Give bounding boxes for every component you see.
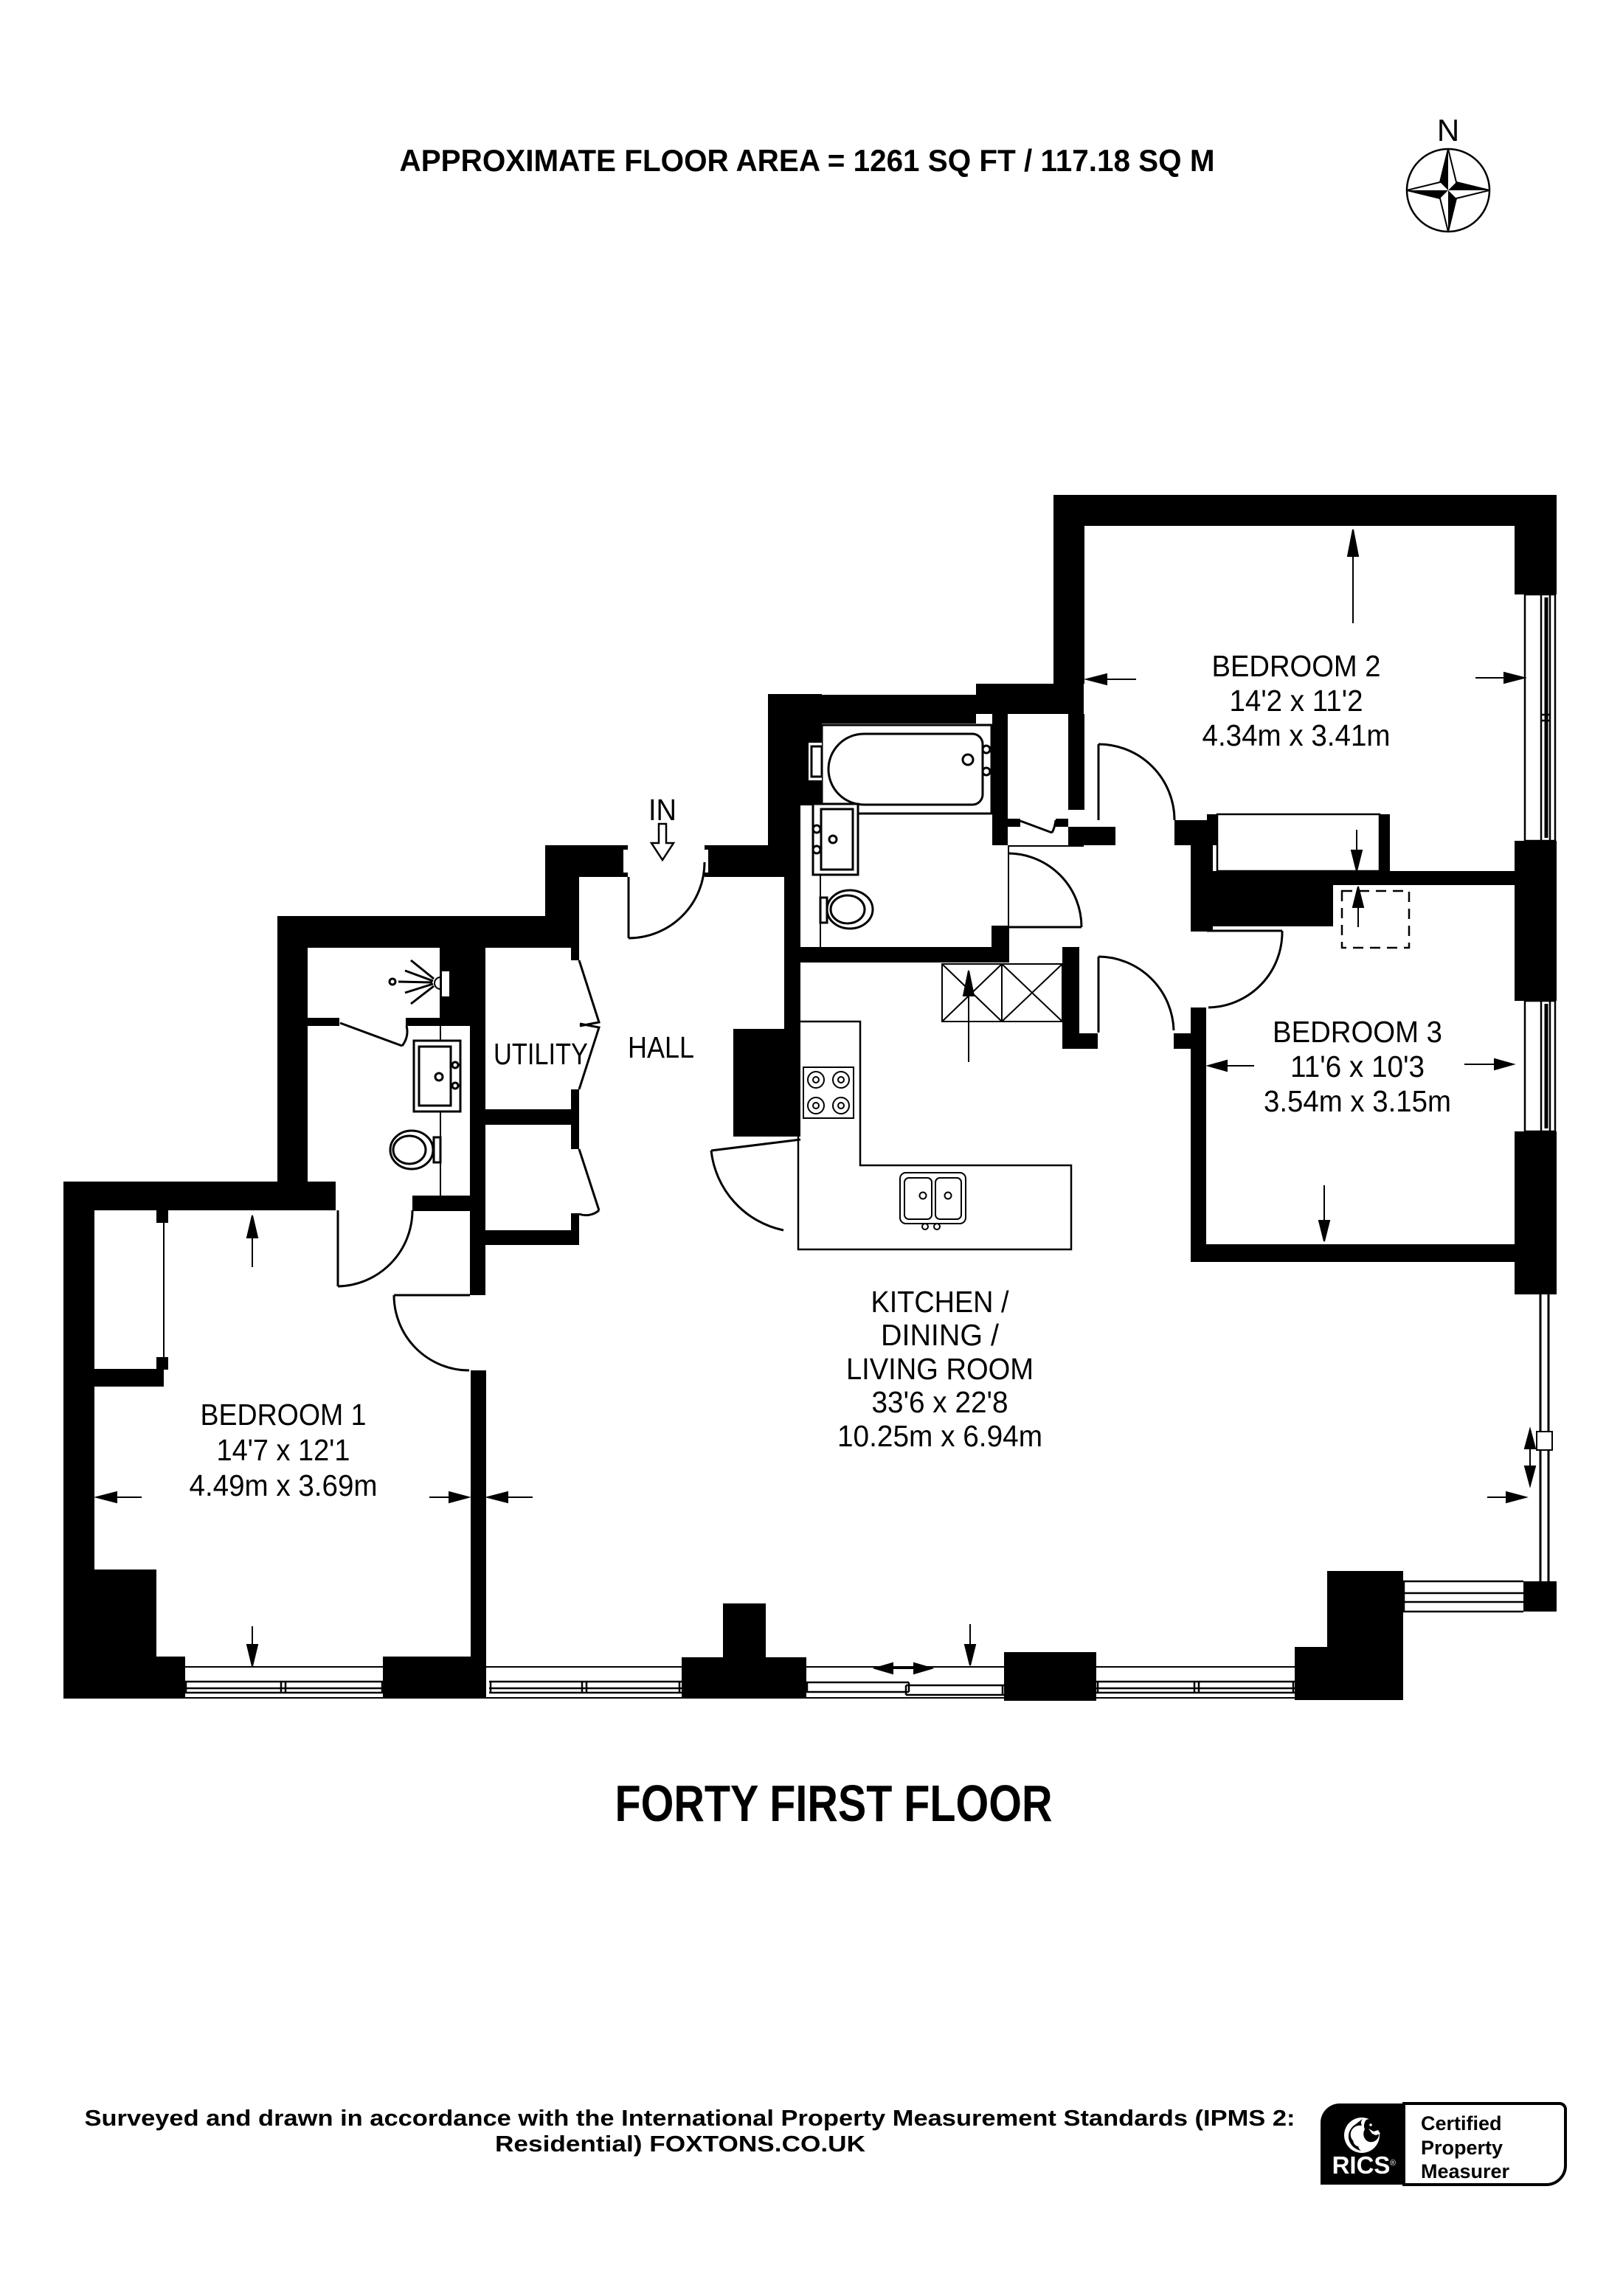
svg-text:BEDROOM 1: BEDROOM 1 xyxy=(201,1398,367,1432)
svg-text:UTILITY: UTILITY xyxy=(494,1037,588,1071)
svg-text:N: N xyxy=(1437,113,1459,148)
svg-text:14'7 x 12'1: 14'7 x 12'1 xyxy=(217,1433,350,1467)
svg-text:Measurer: Measurer xyxy=(1421,2160,1510,2182)
svg-text:RICS: RICS xyxy=(1332,2151,1391,2179)
svg-text:11'6 x 10'3: 11'6 x 10'3 xyxy=(1290,1050,1425,1083)
svg-text:LIVING ROOM: LIVING ROOM xyxy=(846,1352,1034,1386)
svg-text:KITCHEN /: KITCHEN / xyxy=(871,1285,1010,1319)
svg-text:33'6 x 22'8: 33'6 x 22'8 xyxy=(872,1385,1008,1419)
svg-text:4.49m x 3.69m: 4.49m x 3.69m xyxy=(190,1468,378,1502)
svg-text:FORTY FIRST FLOOR: FORTY FIRST FLOOR xyxy=(615,1775,1053,1832)
svg-text:DINING /: DINING / xyxy=(881,1318,1000,1352)
svg-text:4.34m x 3.41m: 4.34m x 3.41m xyxy=(1202,718,1391,752)
svg-text:3.54m x 3.15m: 3.54m x 3.15m xyxy=(1264,1084,1451,1118)
svg-text:BEDROOM 3: BEDROOM 3 xyxy=(1273,1015,1442,1049)
svg-text:Certified: Certified xyxy=(1421,2112,1502,2134)
svg-text:®: ® xyxy=(1390,2159,1396,2168)
svg-text:Property: Property xyxy=(1421,2137,1503,2159)
svg-text:IN: IN xyxy=(648,793,676,827)
svg-text:14'2 x 11'2: 14'2 x 11'2 xyxy=(1230,684,1363,718)
svg-text:Residential) FOXTONS.CO.UK: Residential) FOXTONS.CO.UK xyxy=(495,2131,866,2157)
svg-text:HALL: HALL xyxy=(628,1030,694,1064)
svg-text:BEDROOM 2: BEDROOM 2 xyxy=(1212,649,1381,683)
svg-text:10.25m x 6.94m: 10.25m x 6.94m xyxy=(837,1419,1042,1453)
svg-text:APPROXIMATE FLOOR AREA = 1261: APPROXIMATE FLOOR AREA = 1261 SQ FT / 11… xyxy=(400,143,1215,178)
svg-text:Surveyed and drawn in accordan: Surveyed and drawn in accordance with th… xyxy=(85,2105,1295,2131)
